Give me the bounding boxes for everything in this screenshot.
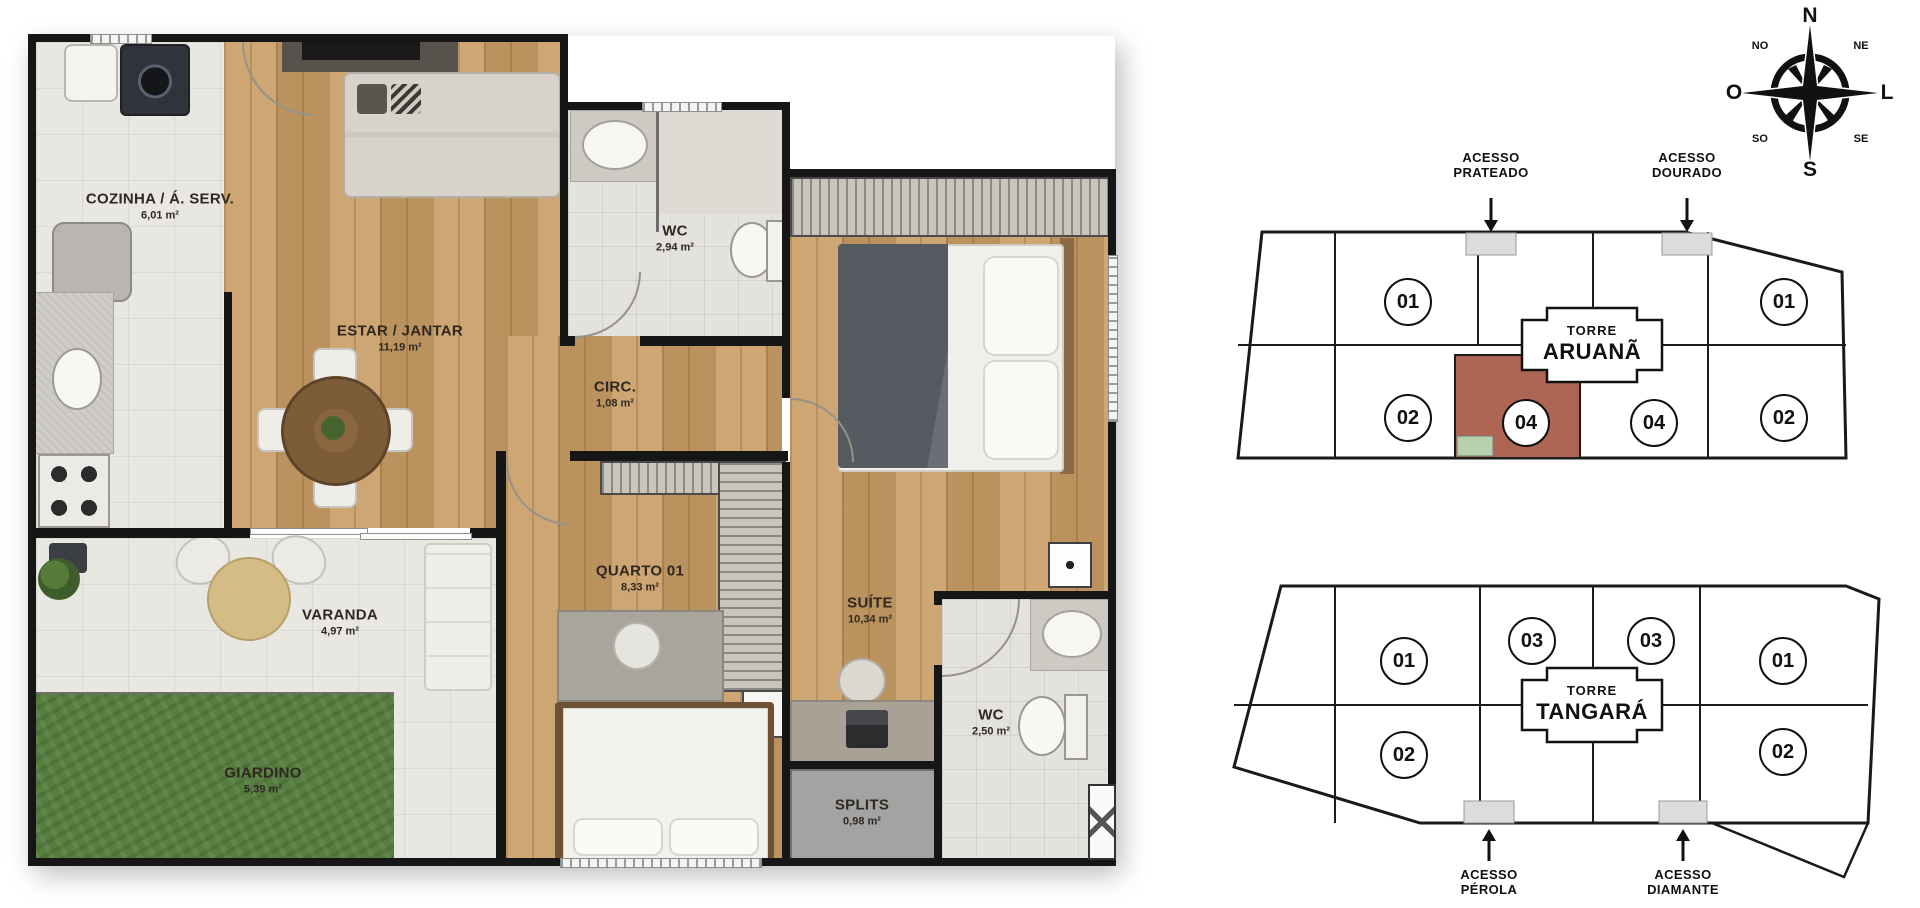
pillow bbox=[573, 818, 663, 856]
wall-segment bbox=[782, 169, 1116, 177]
room-area: 1,08 m² bbox=[594, 398, 636, 410]
washing-machine bbox=[120, 44, 190, 116]
keyplan-torre-tangara: TORRE TANGARÁ 01 03 03 01 02 02 ACESSO P… bbox=[1230, 555, 1890, 908]
room-label-splits: SPLITS 0,98 m² bbox=[835, 797, 889, 828]
access-line: DOURADO bbox=[1652, 165, 1722, 180]
wall-segment bbox=[28, 34, 36, 866]
access-line: PÉROLA bbox=[1460, 882, 1517, 897]
room-name: WC bbox=[972, 707, 1010, 724]
pillow bbox=[983, 256, 1059, 356]
access-line: ACESSO bbox=[1460, 867, 1517, 882]
wall-segment bbox=[224, 292, 232, 538]
room-name: CIRC. bbox=[594, 379, 636, 396]
stove-cooktop bbox=[38, 454, 110, 528]
pillow bbox=[669, 818, 759, 856]
ac-return-box bbox=[1048, 542, 1092, 588]
room-label-suite: SUÍTE 10,34 m² bbox=[847, 595, 893, 626]
room-area: 0,98 m² bbox=[835, 816, 889, 828]
room-name: COZINHA / Á. SERV. bbox=[86, 191, 234, 208]
wall-segment bbox=[782, 169, 790, 398]
access-dourado-label: ACESSO DOURADO bbox=[1652, 150, 1722, 180]
room-area: 6,01 m² bbox=[86, 210, 234, 222]
compass-no: NO bbox=[1752, 40, 1769, 52]
room-name: QUARTO 01 bbox=[596, 563, 684, 580]
unit-circle-04: 04 bbox=[1630, 399, 1678, 447]
unit-circle-01: 01 bbox=[1380, 637, 1428, 685]
room-name: SUÍTE bbox=[847, 595, 893, 612]
patio-table bbox=[207, 557, 291, 641]
wall-segment bbox=[782, 462, 790, 866]
wall-segment bbox=[560, 336, 575, 346]
unit-circle-01: 01 bbox=[1384, 278, 1432, 326]
room-label-giardino: GIARDINO 5,39 m² bbox=[224, 765, 301, 796]
unit-circle-04-highlighted: 04 bbox=[1502, 399, 1550, 447]
torre-name-text: TANGARÁ bbox=[1536, 699, 1648, 725]
room-label-estar: ESTAR / JANTAR 11,19 m² bbox=[337, 323, 463, 354]
room-name: VARANDA bbox=[302, 607, 378, 624]
louver-window bbox=[1088, 784, 1116, 860]
unit-circle-03: 03 bbox=[1627, 617, 1675, 665]
bathroom-sink bbox=[582, 120, 648, 170]
window bbox=[1108, 255, 1118, 422]
sofa-pillow bbox=[357, 84, 387, 114]
torre-tangara-name: TORRE TANGARÁ bbox=[1536, 683, 1648, 725]
floor-plan-sheet: COZINHA / Á. SERV. 6,01 m² ESTAR / JANTA… bbox=[0, 0, 1920, 908]
room-area: 4,97 m² bbox=[302, 626, 378, 638]
unit-circle-02: 02 bbox=[1380, 731, 1428, 779]
torre-name-text: ARUANÃ bbox=[1543, 339, 1641, 365]
room-label-wc-suite: WC 2,50 m² bbox=[972, 707, 1010, 738]
access-line: ACESSO bbox=[1647, 867, 1719, 882]
compass-n: N bbox=[1802, 4, 1817, 28]
shower-area bbox=[659, 110, 782, 214]
room-area: 10,34 m² bbox=[847, 614, 893, 626]
window bbox=[642, 102, 722, 112]
torre-word: TORRE bbox=[1536, 683, 1648, 698]
wall-segment bbox=[560, 34, 568, 110]
room-giardino bbox=[36, 692, 394, 860]
unit-circle-02: 02 bbox=[1759, 728, 1807, 776]
apartment-floor-plan: COZINHA / Á. SERV. 6,01 m² ESTAR / JANTA… bbox=[25, 30, 1130, 875]
wall-segment bbox=[934, 591, 942, 605]
bathroom-sink bbox=[1042, 610, 1102, 658]
unit-circle-02: 02 bbox=[1760, 394, 1808, 442]
tv bbox=[302, 42, 420, 60]
room-label-cozinha: COZINHA / Á. SERV. 6,01 m² bbox=[86, 191, 234, 222]
unit-circle-03: 03 bbox=[1508, 617, 1556, 665]
unit-circle-01: 01 bbox=[1759, 637, 1807, 685]
room-label-varanda: VARANDA 4,97 m² bbox=[302, 607, 378, 638]
sliding-door-panel bbox=[250, 528, 368, 535]
room-area: 5,39 m² bbox=[224, 784, 301, 796]
toilet-bowl bbox=[1018, 696, 1066, 756]
pillow bbox=[983, 360, 1059, 460]
unit-circle-01: 01 bbox=[1760, 278, 1808, 326]
garden-bush bbox=[38, 558, 80, 600]
access-line: ACESSO bbox=[1453, 150, 1528, 165]
room-area: 8,33 m² bbox=[596, 582, 684, 594]
wall-segment bbox=[782, 761, 942, 769]
room-area: 2,50 m² bbox=[972, 726, 1010, 738]
wardrobe-suite bbox=[790, 177, 1112, 237]
wall-segment bbox=[496, 451, 506, 866]
access-line: ACESSO bbox=[1652, 150, 1722, 165]
room-label-circ: CIRC. 1,08 m² bbox=[594, 379, 636, 410]
room-name: WC bbox=[656, 223, 694, 240]
laptop bbox=[846, 710, 888, 748]
compass-ne: NE bbox=[1853, 40, 1868, 52]
wall-segment bbox=[640, 336, 788, 346]
torre-word: TORRE bbox=[1543, 323, 1641, 338]
window bbox=[560, 858, 762, 868]
toilet-tank bbox=[1064, 694, 1088, 760]
room-circulacao bbox=[506, 336, 782, 461]
torre-aruana-name: TORRE ARUANÃ bbox=[1543, 323, 1641, 365]
room-area: 11,19 m² bbox=[337, 342, 463, 354]
compass-o: O bbox=[1726, 81, 1742, 105]
room-area: 2,94 m² bbox=[656, 242, 694, 254]
wall-segment bbox=[28, 528, 250, 538]
bench-seat bbox=[424, 543, 492, 691]
access-perola-label: ACESSO PÉROLA bbox=[1460, 867, 1517, 897]
sliding-door-panel bbox=[360, 533, 472, 540]
wall-segment bbox=[782, 102, 790, 177]
access-line: PRATEADO bbox=[1453, 165, 1528, 180]
room-label-wc-top: WC 2,94 m² bbox=[656, 223, 694, 254]
access-diamante-label: ACESSO DIAMANTE bbox=[1647, 867, 1719, 897]
wall-segment bbox=[934, 591, 1116, 599]
room-label-quarto: QUARTO 01 8,33 m² bbox=[596, 563, 684, 594]
room-name: ESTAR / JANTAR bbox=[337, 323, 463, 340]
wardrobe-quarto-side bbox=[718, 461, 786, 692]
fridge bbox=[52, 222, 132, 302]
table-plant bbox=[321, 416, 345, 440]
room-name: SPLITS bbox=[835, 797, 889, 814]
wall-segment bbox=[570, 451, 788, 461]
window bbox=[90, 34, 152, 44]
sofa-pillow-zigzag bbox=[391, 84, 421, 114]
access-prateado-label: ACESSO PRATEADO bbox=[1453, 150, 1528, 180]
compass-l: L bbox=[1881, 81, 1894, 105]
desk-chair bbox=[613, 622, 661, 670]
kitchen-sink bbox=[52, 348, 102, 410]
room-name: GIARDINO bbox=[224, 765, 301, 782]
access-line: DIAMANTE bbox=[1647, 882, 1719, 897]
blanket-suite bbox=[838, 244, 948, 468]
unit-circle-02: 02 bbox=[1384, 394, 1432, 442]
keyplan-torre-aruana: ACESSO PRATEADO ACESSO DOURADO TORRE ARU… bbox=[1230, 140, 1875, 465]
suite-desk-chair bbox=[838, 658, 886, 704]
laundry-tank-sink bbox=[64, 44, 118, 102]
wall-segment bbox=[560, 102, 568, 346]
